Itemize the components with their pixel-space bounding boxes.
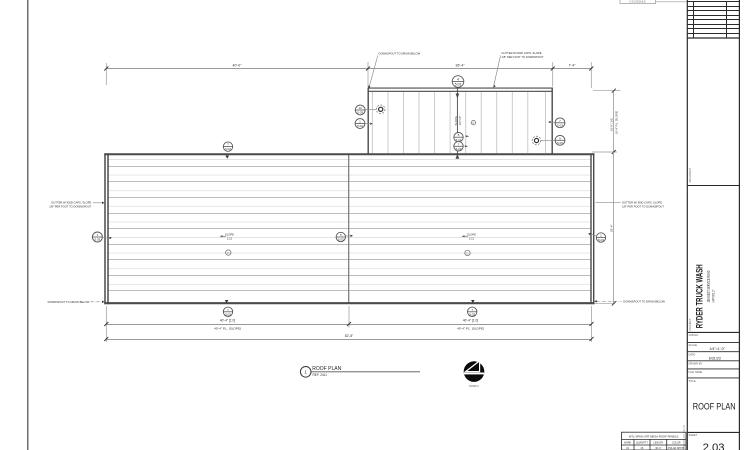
- svg-text:5.03: 5.03: [225, 147, 231, 151]
- svg-text:6/31/23: 6/31/23: [709, 356, 721, 360]
- svg-text:TITLE: TITLE: [689, 379, 696, 383]
- svg-text:36'-4": 36'-4": [456, 64, 466, 68]
- svg-text:R: R: [472, 121, 474, 125]
- svg-text:DOWNSPOUT TO DRAIN BELOW: DOWNSPOUT TO DRAIN BELOW: [48, 300, 90, 304]
- svg-text:MTL-SPAN CFR MESA ROOF PANELS: MTL-SPAN CFR MESA ROOF PANELS: [629, 435, 679, 439]
- svg-text:SLOPE: SLOPE: [467, 232, 476, 236]
- svg-text:40'-4" P.L. [SLOPE]: 40'-4" P.L. [SLOPE]: [457, 326, 484, 330]
- svg-text:1/8" PER FOOT TO DOWNSPOUT: 1/8" PER FOOT TO DOWNSPOUT: [622, 204, 664, 208]
- svg-text:40'-4" P.L. [SLOPE]: 40'-4" P.L. [SLOPE]: [214, 326, 241, 330]
- svg-text:ROOF PLAN: ROOF PLAN: [312, 366, 341, 372]
- svg-text:1/8" PER FOOT TO DOWNSPOUT: 1/8" PER FOOT TO DOWNSPOUT: [502, 55, 544, 59]
- svg-text:5.03: 5.03: [338, 238, 344, 242]
- svg-text:1/4"=1'-0": 1/4"=1'-0": [709, 347, 725, 351]
- svg-text:1: 1: [304, 370, 307, 375]
- svg-text:1/4":12": 1/4":12": [458, 116, 462, 126]
- svg-text:GUTTER W/ END CAPS, SLOPE: GUTTER W/ END CAPS, SLOPE: [502, 51, 542, 55]
- svg-text:5.03: 5.03: [456, 147, 462, 151]
- svg-text:5.03: 5.03: [557, 141, 563, 145]
- svg-text:MARK: MARK: [624, 441, 631, 444]
- svg-text:5.03: 5.03: [94, 238, 100, 242]
- svg-text:GUTTER W/ END CAPS, SLOPE: GUTTER W/ END CAPS, SLOPE: [622, 200, 662, 204]
- svg-text:5.03: 5.03: [557, 123, 563, 127]
- svg-text:10'-4" P.L. [SLOPE]: 10'-4" P.L. [SLOPE]: [614, 111, 618, 134]
- svg-text:DOWNSPOUT TO DRAIN BELOW: DOWNSPOUT TO DRAIN BELOW: [623, 300, 665, 304]
- svg-text:PROJECT: PROJECT: [688, 318, 692, 331]
- svg-text:25'-4": 25'-4": [609, 224, 613, 232]
- svg-text:4: 4: [457, 77, 459, 81]
- svg-text:SLOPE: SLOPE: [225, 232, 234, 236]
- svg-text:1:12: 1:12: [469, 236, 475, 240]
- svg-text:2.03: 2.03: [703, 442, 725, 450]
- svg-text:40'-4" [1:0]: 40'-4" [1:0]: [220, 319, 235, 323]
- svg-text:1/8" PER FOOT TO DOWNSPOUT: 1/8" PER FOOT TO DOWNSPOUT: [49, 204, 91, 208]
- svg-text:ROOF PLAN: ROOF PLAN: [693, 402, 736, 412]
- svg-text:GUTTER W/ END CAPS, SLOPE: GUTTER W/ END CAPS, SLOPE: [51, 200, 91, 204]
- svg-text:DOWNSPOUT TO DRAIN BELOW: DOWNSPOUT TO DRAIN BELOW: [379, 52, 421, 56]
- svg-text:RYDER TRUCK WASH: RYDER TRUCK WASH: [695, 264, 705, 328]
- svg-text:ARCHITECT: ARCHITECT: [688, 167, 692, 182]
- svg-text:185 WEST SERVICE ROAD: 185 WEST SERVICE ROAD: [706, 270, 711, 302]
- svg-text:5.03: 5.03: [225, 312, 231, 316]
- svg-text:5.03: 5.03: [357, 111, 363, 115]
- svg-text:5.03: 5.03: [357, 124, 363, 128]
- svg-text:HARTFORD, CT: HARTFORD, CT: [712, 290, 716, 303]
- svg-text:5.03: 5.03: [455, 83, 462, 87]
- svg-text:10: 10: [359, 106, 363, 110]
- svg-text:5.03: 5.03: [598, 238, 604, 242]
- svg-text:DATE: DATE: [689, 352, 696, 356]
- svg-text:7'-4": 7'-4": [569, 64, 577, 68]
- svg-text:0 SCHEDULE: 0 SCHEDULE: [629, 0, 646, 4]
- svg-text:POLAR WHITE: POLAR WHITE: [668, 447, 685, 450]
- svg-text:1:12: 1:12: [227, 236, 233, 240]
- svg-text:82'-8": 82'-8": [345, 334, 354, 338]
- svg-text:40'-4": 40'-4": [655, 447, 661, 450]
- svg-text:COLOR: COLOR: [672, 441, 681, 444]
- svg-text:REF. 2/A1: REF. 2/A1: [313, 373, 328, 377]
- svg-text:40'-0": 40'-0": [233, 64, 243, 68]
- svg-text:LENGTH: LENGTH: [653, 441, 663, 444]
- svg-text:NORTH: NORTH: [469, 384, 479, 388]
- svg-text:10'-0" [1:0]: 10'-0" [1:0]: [609, 118, 613, 131]
- svg-text:DRAWN BY: DRAWN BY: [689, 362, 703, 366]
- svg-text:JOB NO.: JOB NO.: [689, 333, 700, 337]
- svg-text:QUANTITY: QUANTITY: [636, 441, 648, 444]
- svg-text:SHEET: SHEET: [689, 433, 698, 437]
- svg-text:40'-4" [1:0]: 40'-4" [1:0]: [463, 319, 478, 323]
- svg-text:FILE NAME: FILE NAME: [689, 370, 703, 374]
- svg-text:SCALE: SCALE: [689, 343, 698, 347]
- svg-text:5.03: 5.03: [469, 312, 475, 316]
